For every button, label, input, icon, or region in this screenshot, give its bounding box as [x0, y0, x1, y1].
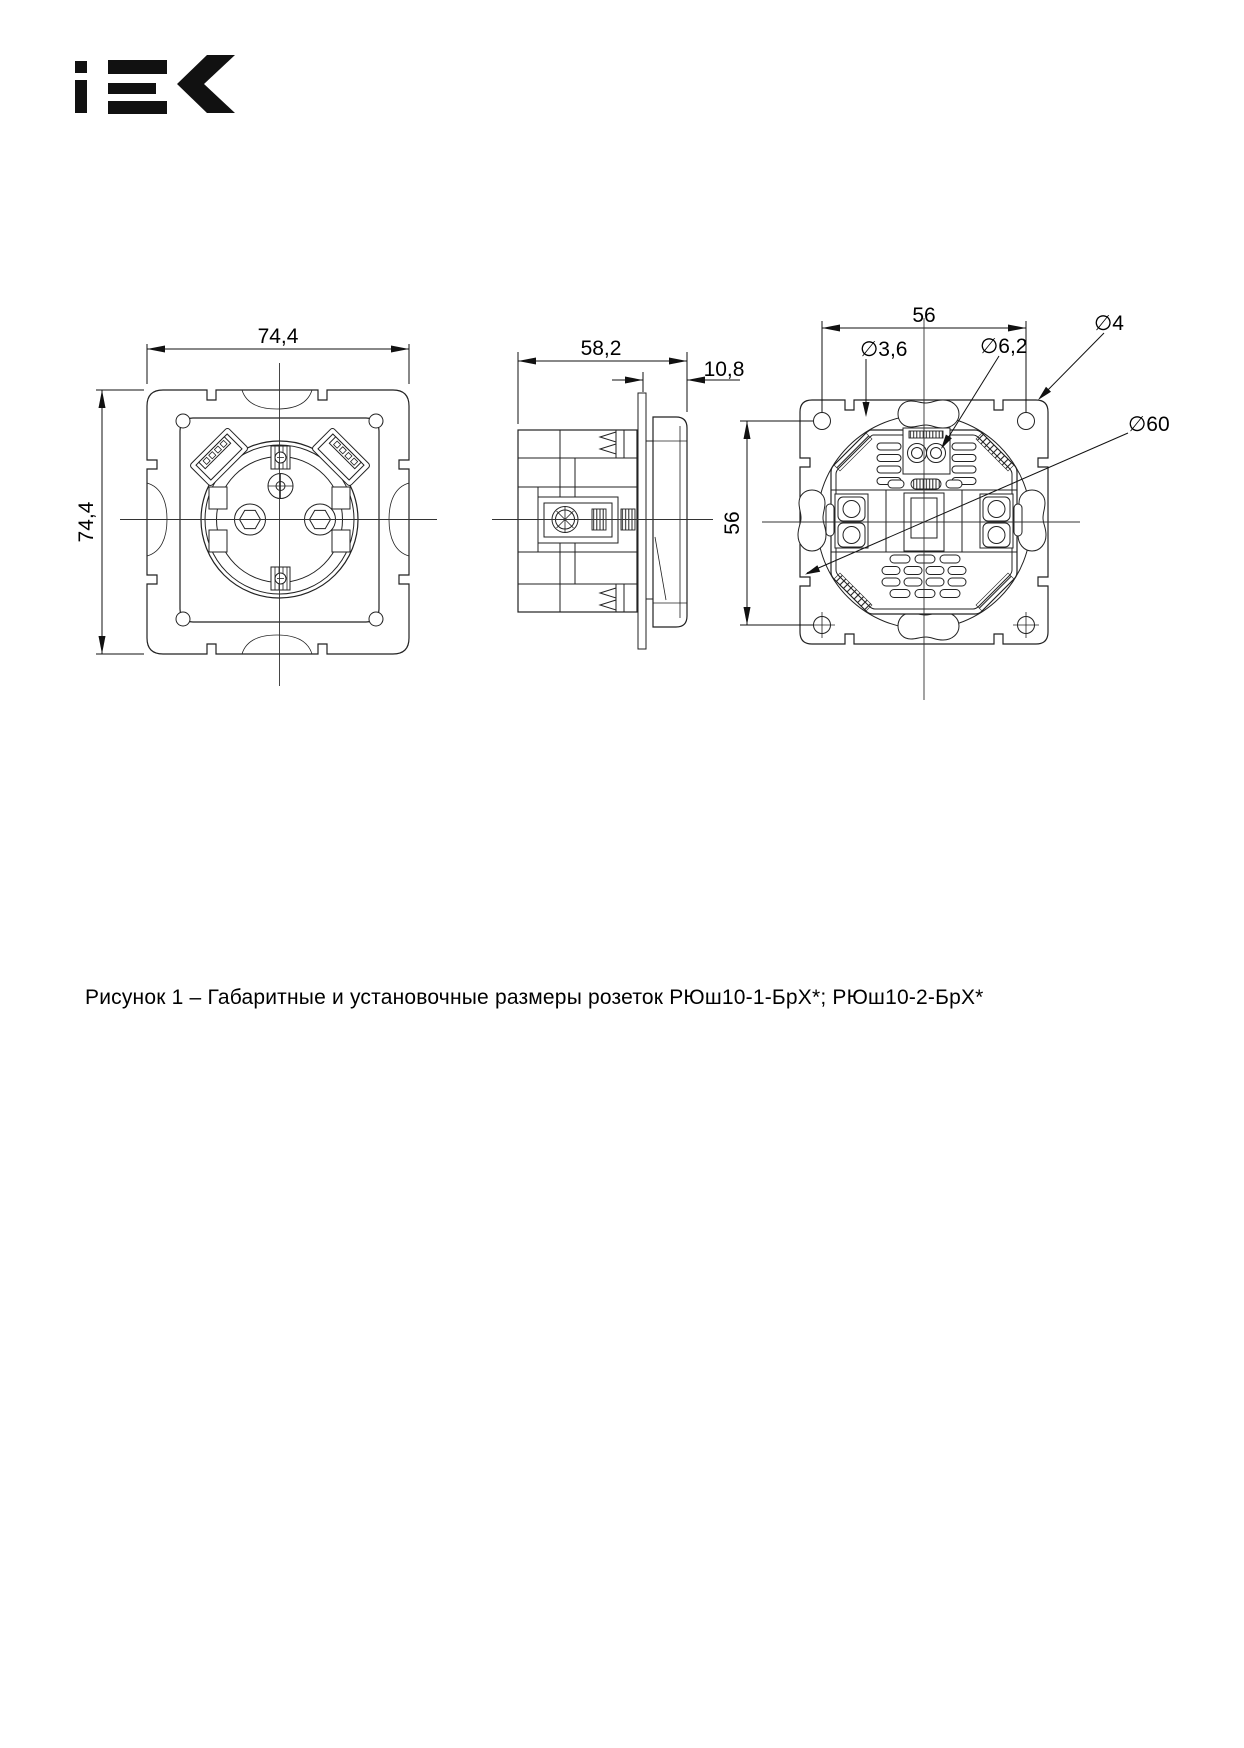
earth-clip-bottom: [271, 567, 290, 590]
technical-drawing: 74,4 74,4: [60, 292, 1240, 712]
dia-3-6-label: ∅3,6: [860, 338, 908, 361]
centre-screw: [268, 474, 293, 499]
earth-clip-top: [271, 446, 290, 469]
top-terminal-box: [903, 428, 950, 474]
dim-side-thickness: 10,8: [704, 358, 745, 381]
dim-front-width: 74,4: [258, 325, 299, 348]
side-view: 58,2 10,8: [492, 337, 744, 649]
dia-4-label: ∅4: [1094, 312, 1124, 335]
side-flange: [638, 393, 646, 649]
dim-back-hole-spacing-v: 56: [721, 511, 744, 534]
iek-logo: [73, 53, 237, 115]
dim-side-depth: 58,2: [581, 337, 622, 360]
dia-6-2-label: ∅6,2: [980, 335, 1028, 358]
dia-60-label: ∅60: [1128, 413, 1170, 436]
side-frame: [653, 417, 687, 627]
dim-front-height: 74,4: [75, 501, 98, 542]
iek-logo-glyphs: [75, 55, 235, 114]
document-page: 74,4 74,4: [0, 0, 1244, 1748]
side-dimensions: 58,2 10,8: [518, 337, 744, 424]
front-view: 74,4 74,4: [75, 325, 437, 686]
figure-caption: Рисунок 1 – Габаритные и установочные ра…: [85, 986, 1185, 1010]
back-view: 56 56 ∅3,6 ∅6,2 ∅4 ∅60: [721, 304, 1170, 700]
